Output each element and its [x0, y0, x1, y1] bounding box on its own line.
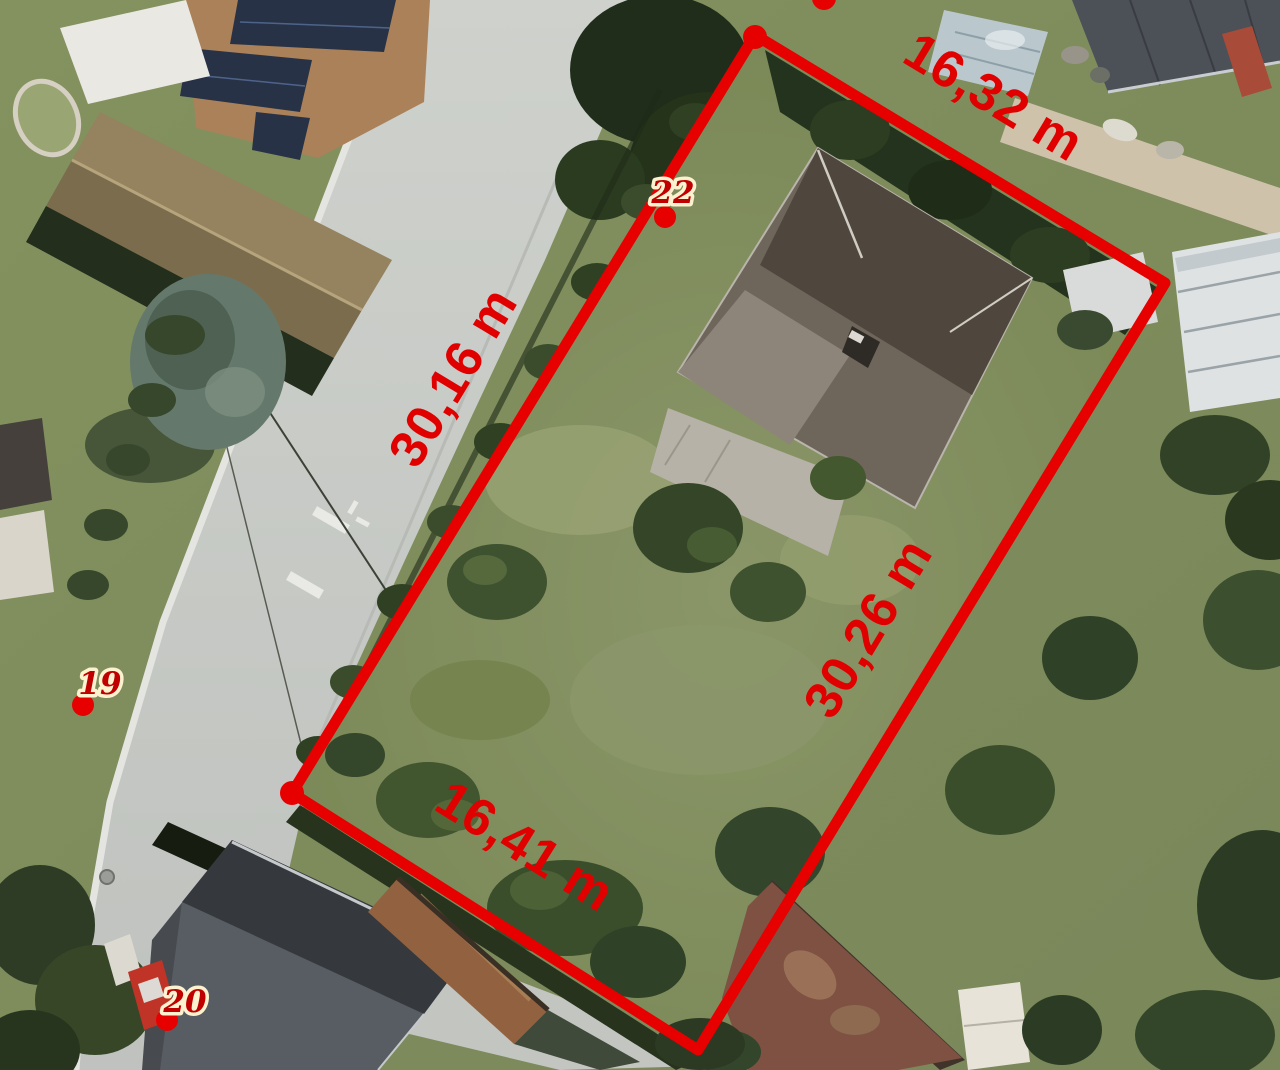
survey-dot-top-clipped [812, 0, 836, 10]
dimension-right: 30,26 m [793, 529, 945, 728]
parcel-outline [292, 35, 1165, 1050]
measurement-overlay: 16,32 m 30,16 m 30,26 m 16,41 m 22 19 20 [0, 0, 1280, 1070]
survey-dot-corner-a [743, 25, 767, 49]
point-label-22: 22 [650, 175, 694, 211]
aerial-measurement-view: 16,32 m 30,16 m 30,26 m 16,41 m 22 19 20 [0, 0, 1280, 1070]
point-label-20: 20 [162, 984, 207, 1020]
survey-dots [72, 0, 836, 1031]
survey-dot-corner-d [280, 781, 304, 805]
dimension-top: 16,32 m [894, 22, 1093, 174]
point-label-19: 19 [78, 666, 121, 702]
